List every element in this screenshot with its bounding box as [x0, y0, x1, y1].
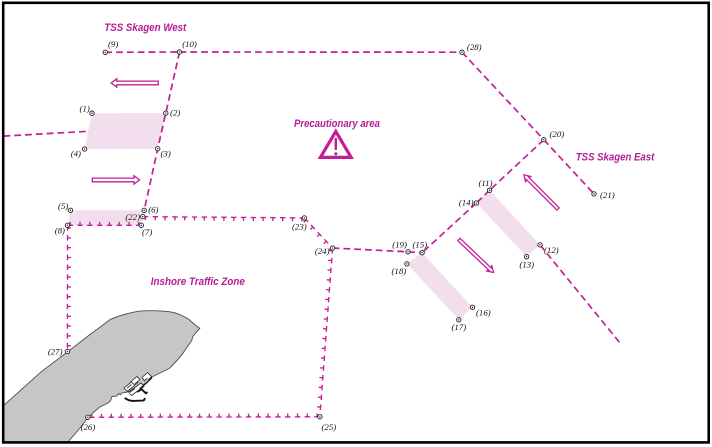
svg-text:TSS Skagen East: TSS Skagen East — [576, 152, 656, 164]
svg-text:(22): (22) — [125, 212, 140, 222]
svg-text:(23): (23) — [292, 222, 307, 232]
svg-text:(24): (24) — [315, 246, 330, 256]
svg-text:(6): (6) — [148, 205, 158, 215]
svg-text:(5): (5) — [58, 201, 68, 211]
svg-text:(3): (3) — [161, 149, 171, 159]
svg-text:(19): (19) — [392, 239, 407, 249]
svg-text:(9): (9) — [108, 39, 118, 49]
svg-text:(16): (16) — [476, 307, 491, 317]
svg-text:(20): (20) — [550, 129, 565, 139]
svg-text:(8): (8) — [55, 226, 65, 236]
svg-text:(18): (18) — [392, 266, 407, 276]
svg-text:(27): (27) — [48, 347, 63, 357]
svg-text:(28): (28) — [467, 42, 482, 52]
svg-text:(2): (2) — [170, 107, 180, 117]
svg-text:(25): (25) — [322, 422, 337, 432]
svg-text:(11): (11) — [479, 178, 493, 188]
svg-text:(14): (14) — [459, 198, 474, 208]
svg-text:(15): (15) — [413, 239, 428, 249]
svg-text:(10): (10) — [182, 39, 197, 49]
svg-text:(1): (1) — [80, 104, 90, 114]
svg-text:(7): (7) — [142, 227, 152, 237]
svg-text:(17): (17) — [452, 322, 467, 332]
svg-text:Precautionary area: Precautionary area — [294, 118, 380, 130]
svg-text:(13): (13) — [519, 260, 534, 270]
svg-text:Inshore Traffic Zone: Inshore Traffic Zone — [151, 276, 245, 288]
svg-text:(12): (12) — [544, 245, 559, 255]
svg-text:TSS Skagen West: TSS Skagen West — [104, 22, 187, 34]
svg-text:(21): (21) — [600, 190, 615, 200]
svg-text:(4): (4) — [71, 149, 81, 159]
svg-text:(26): (26) — [81, 422, 96, 432]
